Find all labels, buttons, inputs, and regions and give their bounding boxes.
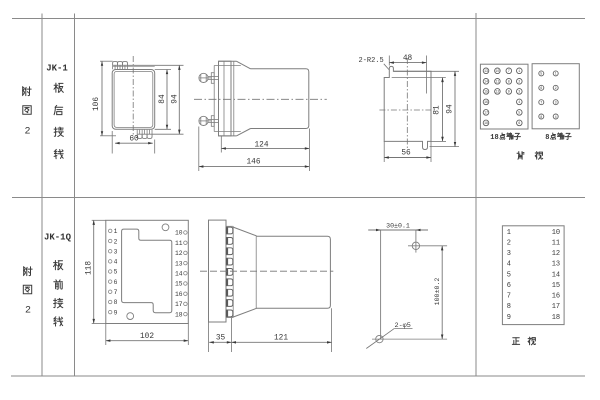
svg-text:100±0.2: 100±0.2 bbox=[434, 278, 441, 306]
svg-text:1: 1 bbox=[114, 228, 118, 235]
svg-text:12: 12 bbox=[175, 250, 183, 257]
svg-text:3: 3 bbox=[555, 102, 557, 106]
svg-text:11: 11 bbox=[175, 240, 183, 247]
svg-text:17: 17 bbox=[175, 301, 183, 308]
svg-text:10: 10 bbox=[495, 70, 499, 74]
svg-text:12: 12 bbox=[552, 250, 560, 258]
svg-text:7: 7 bbox=[508, 70, 510, 74]
svg-text:16: 16 bbox=[175, 291, 183, 298]
svg-text:146: 146 bbox=[246, 158, 260, 166]
svg-text:2-φ5: 2-φ5 bbox=[395, 322, 411, 330]
svg-text:8: 8 bbox=[540, 116, 542, 120]
svg-text:5: 5 bbox=[114, 269, 118, 276]
svg-text:9: 9 bbox=[114, 309, 118, 316]
svg-text:13: 13 bbox=[175, 260, 183, 267]
svg-text:JK-1Q: JK-1Q bbox=[44, 233, 72, 243]
svg-text:102: 102 bbox=[140, 333, 154, 341]
svg-text:56: 56 bbox=[401, 150, 411, 158]
svg-text:9: 9 bbox=[508, 91, 510, 95]
svg-text:8: 8 bbox=[508, 81, 510, 85]
svg-text:7: 7 bbox=[114, 289, 118, 296]
svg-text:4: 4 bbox=[518, 101, 520, 105]
svg-text:2: 2 bbox=[25, 306, 31, 317]
svg-text:3: 3 bbox=[518, 91, 520, 95]
svg-text:1: 1 bbox=[507, 229, 511, 237]
svg-text:10: 10 bbox=[175, 230, 183, 237]
svg-text:5: 5 bbox=[507, 271, 511, 279]
svg-text:12: 12 bbox=[495, 91, 499, 95]
svg-text:18: 18 bbox=[552, 314, 560, 322]
svg-text:JK-1: JK-1 bbox=[46, 64, 68, 74]
svg-text:3: 3 bbox=[507, 250, 511, 258]
svg-text:4: 4 bbox=[507, 261, 511, 269]
svg-text:2: 2 bbox=[114, 238, 118, 245]
svg-text:14: 14 bbox=[552, 271, 560, 279]
svg-text:14: 14 bbox=[484, 81, 488, 85]
svg-text:48: 48 bbox=[403, 55, 413, 63]
svg-text:124: 124 bbox=[254, 141, 268, 149]
svg-text:11: 11 bbox=[552, 239, 560, 247]
svg-text:1: 1 bbox=[555, 73, 557, 77]
svg-text:15: 15 bbox=[175, 281, 183, 288]
svg-text:4: 4 bbox=[555, 116, 557, 120]
svg-text:7: 7 bbox=[540, 102, 542, 106]
svg-text:11: 11 bbox=[495, 81, 499, 85]
svg-text:6: 6 bbox=[540, 87, 542, 91]
svg-text:13: 13 bbox=[552, 261, 560, 269]
svg-text:30±0.1: 30±0.1 bbox=[386, 222, 410, 229]
svg-text:94: 94 bbox=[172, 94, 180, 104]
svg-text:94: 94 bbox=[447, 104, 455, 114]
svg-text:13: 13 bbox=[484, 70, 488, 74]
svg-text:4: 4 bbox=[114, 259, 118, 266]
svg-text:17: 17 bbox=[484, 112, 488, 116]
svg-text:6: 6 bbox=[114, 279, 118, 286]
svg-text:81: 81 bbox=[434, 105, 442, 115]
svg-text:2-R2.5: 2-R2.5 bbox=[359, 57, 384, 65]
svg-text:14: 14 bbox=[175, 271, 183, 278]
svg-text:3: 3 bbox=[114, 248, 118, 255]
svg-text:1: 1 bbox=[518, 70, 520, 74]
svg-text:6: 6 bbox=[518, 122, 520, 126]
svg-text:9: 9 bbox=[507, 314, 511, 322]
svg-text:16: 16 bbox=[484, 101, 488, 105]
svg-text:2: 2 bbox=[507, 239, 511, 247]
svg-text:7: 7 bbox=[507, 293, 511, 301]
svg-text:5: 5 bbox=[540, 73, 542, 77]
svg-text:121: 121 bbox=[274, 335, 288, 343]
svg-text:16: 16 bbox=[552, 293, 560, 301]
svg-text:118: 118 bbox=[86, 261, 94, 275]
svg-text:35: 35 bbox=[216, 335, 226, 343]
svg-text:2: 2 bbox=[518, 81, 520, 85]
svg-text:2: 2 bbox=[555, 87, 557, 91]
svg-text:18: 18 bbox=[175, 311, 183, 318]
svg-text:8: 8 bbox=[507, 303, 511, 311]
svg-text:2: 2 bbox=[24, 127, 30, 138]
svg-text:106: 106 bbox=[93, 97, 101, 111]
svg-text:18: 18 bbox=[484, 122, 488, 126]
svg-text:84: 84 bbox=[159, 94, 167, 104]
svg-text:8: 8 bbox=[545, 134, 549, 142]
svg-text:18: 18 bbox=[490, 134, 498, 142]
svg-text:6: 6 bbox=[507, 282, 511, 290]
svg-text:5: 5 bbox=[518, 112, 520, 116]
svg-text:17: 17 bbox=[552, 303, 560, 311]
svg-text:15: 15 bbox=[484, 91, 488, 95]
svg-text:60: 60 bbox=[129, 136, 139, 144]
svg-text:10: 10 bbox=[552, 229, 560, 237]
svg-text:8: 8 bbox=[114, 299, 118, 306]
svg-text:15: 15 bbox=[552, 282, 560, 290]
